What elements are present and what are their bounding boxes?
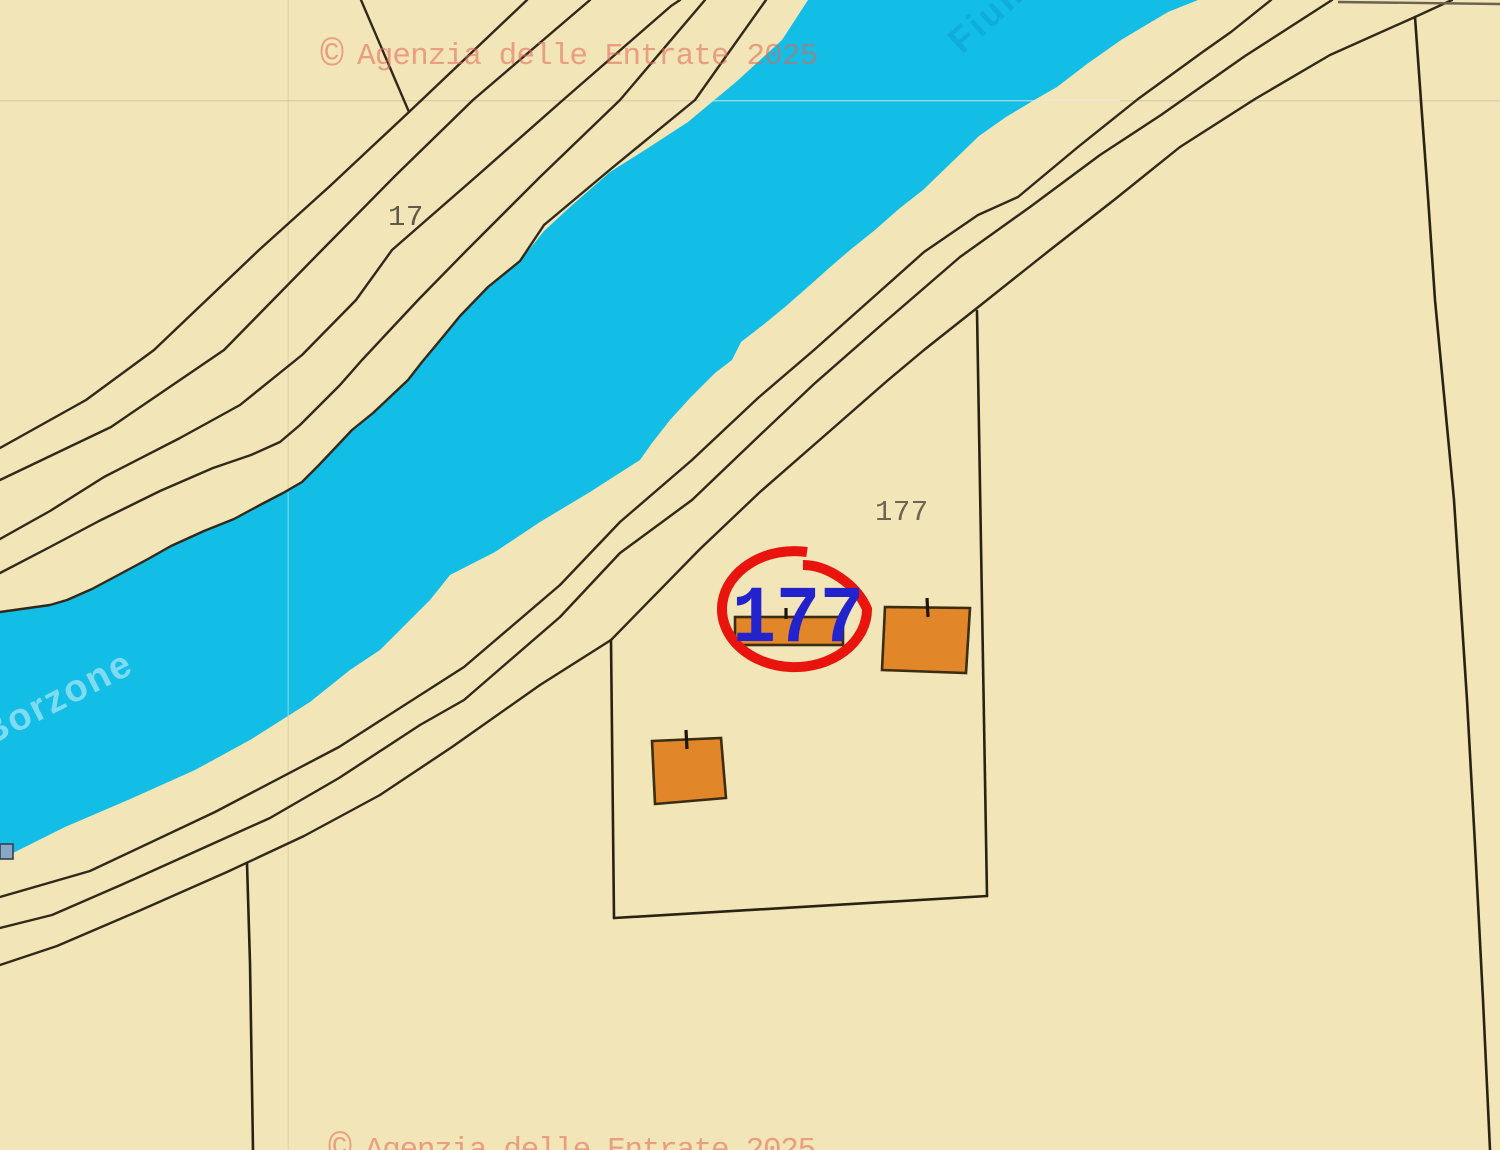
- svg-text:177: 177: [732, 575, 864, 666]
- svg-text:177: 177: [875, 496, 929, 529]
- svg-text:Agenzia delle Entrate 2025: Agenzia delle Entrate 2025: [365, 1133, 815, 1150]
- svg-text:Agenzia delle Entrate 2025: Agenzia delle Entrate 2025: [357, 39, 817, 74]
- svg-text:17: 17: [388, 201, 424, 234]
- svg-text:©: ©: [320, 34, 344, 79]
- svg-text:©: ©: [328, 1128, 352, 1150]
